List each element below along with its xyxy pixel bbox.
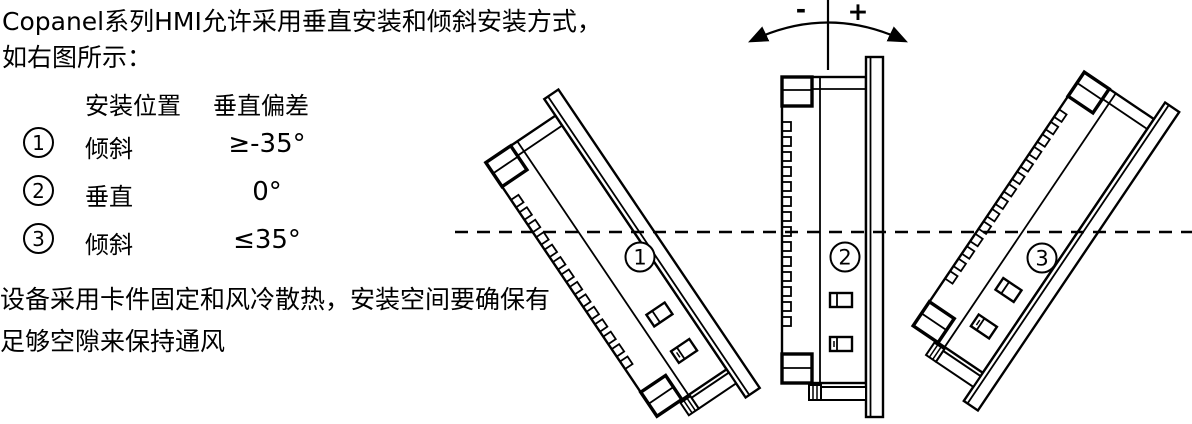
svg-text:1: 1 [633, 246, 646, 270]
page: Copanel系列HMI允许采用垂直安装和倾斜安装方式， 如右图所示： 安装位置… [0, 0, 1192, 424]
tilt-minus-label: - [796, 0, 806, 24]
installation-diagram: - + 1 2 3 [0, 0, 1192, 424]
panel-label-1: 1 [626, 243, 655, 272]
tilt-plus-label: + [848, 0, 869, 26]
panel-tilted-negative [475, 90, 760, 424]
svg-text:3: 3 [1035, 247, 1048, 271]
panel-vertical [782, 57, 883, 417]
panel-label-3: 3 [1028, 244, 1057, 273]
svg-text:2: 2 [838, 246, 851, 270]
panel-label-2: 2 [831, 243, 860, 272]
